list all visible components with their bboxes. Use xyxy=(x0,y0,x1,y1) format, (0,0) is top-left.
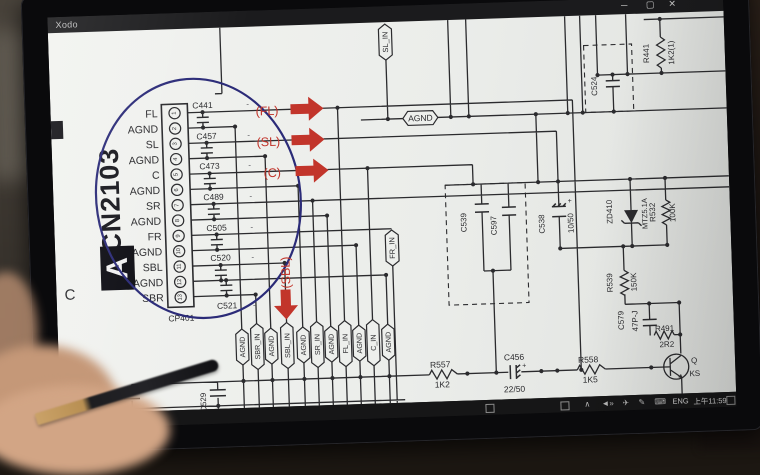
pin-label: SL xyxy=(146,139,159,151)
net-tag-label: AGND xyxy=(267,336,277,357)
pin-number: 8 xyxy=(175,219,181,222)
junction-dot xyxy=(310,198,314,202)
c524-ref: C524 xyxy=(590,76,600,96)
inline-capacitor xyxy=(201,143,214,159)
c538-plus: + xyxy=(568,198,572,205)
junction-dot xyxy=(465,371,469,375)
junction-dot xyxy=(610,72,614,76)
junction-dot xyxy=(241,379,245,383)
net-tag-label: AGND xyxy=(326,334,336,355)
junction-dot xyxy=(224,293,228,297)
minimize-button[interactable]: ─ xyxy=(617,0,631,10)
r557-ref: R557 xyxy=(430,359,451,370)
junction-dot xyxy=(204,141,208,145)
pin-number: 4 xyxy=(173,157,179,161)
r441-ref: R441 xyxy=(642,43,652,63)
grid-reference-letter: C xyxy=(64,287,76,304)
arrow-down-sbl xyxy=(273,289,298,320)
pin-number: 5 xyxy=(174,173,180,176)
junction-dot xyxy=(677,300,681,304)
arrow-label-sl: (SL) xyxy=(256,135,280,150)
r557-val: 1K2 xyxy=(435,379,451,390)
pin-label: AGND xyxy=(130,185,161,198)
inline-capacitor xyxy=(215,265,228,281)
language-label[interactable]: ENG xyxy=(672,396,689,406)
r532-val: 100K xyxy=(668,203,678,223)
junction-dot xyxy=(536,180,540,184)
net-tag-label: C_IN xyxy=(369,334,379,351)
pin-label: FL xyxy=(145,108,158,120)
inline-capacitor xyxy=(211,234,224,250)
pin-label: SR xyxy=(146,200,161,212)
pin-number: 3 xyxy=(173,142,179,145)
c456-plus: + xyxy=(522,363,526,370)
tag-agnd-top: AGND xyxy=(408,113,433,124)
dash-mark: - xyxy=(251,253,254,262)
dash-mark: - xyxy=(247,131,250,140)
junction-dot xyxy=(612,109,616,113)
dash-mark: - xyxy=(250,223,253,232)
junction-dot xyxy=(534,112,538,116)
junction-dot xyxy=(566,111,570,115)
junction-dot xyxy=(625,72,629,76)
action-center-icon[interactable] xyxy=(726,396,735,405)
keyboard-icon[interactable]: ⌨ xyxy=(654,397,666,406)
junction-dot xyxy=(201,125,205,129)
dash-mark: - xyxy=(249,192,252,201)
pin-label: AGND xyxy=(133,277,164,290)
cap-ref: C441 xyxy=(192,100,213,111)
net-tags: SL_IN AGND FR_IN xyxy=(378,22,442,266)
pin-label: AGND xyxy=(131,216,162,229)
pin-label: AGND xyxy=(129,154,160,167)
junction-dot xyxy=(649,365,653,369)
tray-expand-icon[interactable]: ∧ xyxy=(584,400,590,409)
junction-dot xyxy=(270,378,274,382)
junction-dot xyxy=(386,117,390,121)
junction-dot xyxy=(325,213,329,217)
junction-dot xyxy=(471,182,475,186)
close-button[interactable]: ✕ xyxy=(665,0,679,10)
junction-dot xyxy=(214,232,218,236)
junction-dot xyxy=(449,115,453,119)
dash-mark: - xyxy=(246,100,249,109)
junction-dot xyxy=(263,154,267,158)
junction-dot xyxy=(558,246,562,250)
c538-ref: C538 xyxy=(537,214,547,234)
arrow-right-sl xyxy=(291,127,325,152)
dash-mark: - xyxy=(248,161,251,170)
junction-dot xyxy=(555,368,559,372)
c456-ref: C456 xyxy=(504,352,525,363)
pin-label: C xyxy=(152,170,160,182)
pin-label: SBL xyxy=(143,262,163,275)
junction-dot xyxy=(218,263,222,267)
pdf-schematic-page[interactable]: C 1FL2AGND3SL4AGND5C6AGND7SR8AGND9FR10AG… xyxy=(48,11,736,414)
pin-number: 1 xyxy=(172,111,178,114)
junction-dot xyxy=(647,301,651,305)
c597-ref: C597 xyxy=(489,215,499,235)
junction-dot xyxy=(539,369,543,373)
junction-dot xyxy=(330,376,334,380)
junction-dot xyxy=(658,17,662,21)
network-icon[interactable]: ✈ xyxy=(622,398,629,407)
pin-number: 6 xyxy=(174,188,180,191)
junction-dot xyxy=(494,370,498,374)
net-tag-label: AGND xyxy=(383,332,393,353)
junction-dot xyxy=(630,244,634,248)
schematic-drawing: C 1FL2AGND3SL4AGND5C6AGND7SR8AGND9FR10AG… xyxy=(48,11,736,414)
junction-dot xyxy=(358,375,362,379)
junction-dot xyxy=(491,269,495,273)
junction-dot xyxy=(556,179,560,183)
tag-sl-in: SL_IN xyxy=(380,32,390,53)
page-edge-marker xyxy=(51,121,64,139)
c538-val: 10/50 xyxy=(566,212,576,233)
junction-dot xyxy=(200,110,204,114)
junction-dot xyxy=(208,187,212,191)
net-tag-label: SR_IN xyxy=(312,334,322,355)
junction-dot xyxy=(233,124,237,128)
net-tag-label: AGND xyxy=(354,333,364,354)
junction-dot xyxy=(581,110,585,114)
junction-dot xyxy=(219,278,223,282)
r558-ref: R558 xyxy=(578,354,599,365)
junction-dot xyxy=(207,171,211,175)
app-title: Xodo xyxy=(55,19,78,30)
r491-ref: R491 xyxy=(655,324,675,334)
annotation-arrow-labels: (FL) (SL) (C) (SBL) xyxy=(255,103,293,289)
maximize-button[interactable]: ▢ xyxy=(643,0,657,11)
c456-val: 22/50 xyxy=(504,384,526,395)
pin-number: 2 xyxy=(172,127,178,130)
junction-dot xyxy=(211,202,215,206)
pin-label: AGND xyxy=(128,124,159,137)
junction-dot xyxy=(659,71,663,75)
arrow-label-c: (C) xyxy=(263,166,281,181)
junction-dot xyxy=(302,377,306,381)
cap-ref: C473 xyxy=(199,161,220,172)
arrow-label-fl: (FL) xyxy=(255,104,278,119)
cap-ref: C489 xyxy=(203,192,224,203)
arrow-label-sbl: (SBL) xyxy=(278,256,293,288)
junction-dot xyxy=(665,243,669,247)
pin-number: 7 xyxy=(175,203,181,206)
junction-dot xyxy=(384,273,388,277)
pin-number: 11 xyxy=(177,263,183,269)
r532-ref: R532 xyxy=(648,202,658,222)
r558-val: 1K5 xyxy=(582,374,598,385)
junction-dot xyxy=(621,244,625,248)
volume-icon[interactable]: ◄» xyxy=(601,399,614,408)
junction-dot xyxy=(224,278,228,282)
tag-fr-in: FR_IN xyxy=(387,237,397,259)
inline-capacitor xyxy=(197,112,210,128)
r441-val: 1K2(1) xyxy=(666,40,676,65)
r539-val: 150K xyxy=(629,272,639,292)
junction-dot xyxy=(628,177,632,181)
junction-dot xyxy=(678,332,682,336)
dashed-group-boxes xyxy=(441,44,640,305)
junction-dot xyxy=(387,374,391,378)
arrow-right-c xyxy=(295,158,329,183)
inline-capacitor xyxy=(220,280,233,296)
pen-icon[interactable]: ✎ xyxy=(638,398,645,407)
junction-dot xyxy=(253,292,257,296)
cap-ref: C505 xyxy=(206,222,227,233)
junction-dot xyxy=(354,243,358,247)
cap-ref: C521 xyxy=(217,300,238,311)
cap-ref: C457 xyxy=(196,131,217,142)
c539-ref: C539 xyxy=(459,212,469,232)
junction-dot xyxy=(212,217,216,221)
q-part: KS xyxy=(689,369,700,378)
net-tag-label: FL_IN xyxy=(340,334,350,354)
q-ref: Q xyxy=(691,356,698,365)
tag-wire xyxy=(368,168,376,403)
c579-ref: C579 xyxy=(616,310,626,330)
net-tag-label: AGND xyxy=(238,337,248,358)
inline-capacitor xyxy=(204,173,217,189)
net-tag-label: SBL_IN xyxy=(282,333,292,358)
pin-number: 9 xyxy=(176,234,182,237)
pin-label: AGND xyxy=(132,246,163,259)
pin-number: 12 xyxy=(177,279,183,286)
cap-ref: C520 xyxy=(210,252,231,263)
junction-dot xyxy=(663,176,667,180)
c579-val: 47P-J xyxy=(630,310,640,331)
inline-capacitor xyxy=(208,204,221,220)
pin-number: 10 xyxy=(176,248,182,255)
net-tag-label: AGND xyxy=(298,334,308,355)
clock[interactable]: 上午11:59 xyxy=(693,395,727,407)
junction-dot xyxy=(365,166,369,170)
junction-dot xyxy=(216,404,220,408)
net-tag-label: SBR_IN xyxy=(252,333,262,359)
tablet-screen: Xodo ─ ▢ ✕ xyxy=(47,0,736,429)
junction-dot xyxy=(215,248,219,252)
photo-of-tablet-showing-schematic: { "window": { "title": "Xodo", "controls… xyxy=(0,0,760,427)
r539-ref: R539 xyxy=(605,273,615,293)
arrow-right-fl xyxy=(290,96,324,121)
junction-dot xyxy=(335,106,339,110)
zd410-ref: ZD410 xyxy=(605,199,615,224)
junction-dot xyxy=(205,156,209,160)
pin-number: 13 xyxy=(178,294,184,301)
pin-label: FR xyxy=(147,231,162,243)
tag-wire xyxy=(265,156,273,407)
junction-dot xyxy=(467,114,471,118)
taskbar-app-icon[interactable] xyxy=(485,404,494,413)
taskbar-app-icon[interactable] xyxy=(560,401,569,410)
component-labels: R441 1K2(1) C524 C539 C597 C538 10/50 + … xyxy=(100,40,701,414)
r491-val: 2R2 xyxy=(659,340,675,349)
